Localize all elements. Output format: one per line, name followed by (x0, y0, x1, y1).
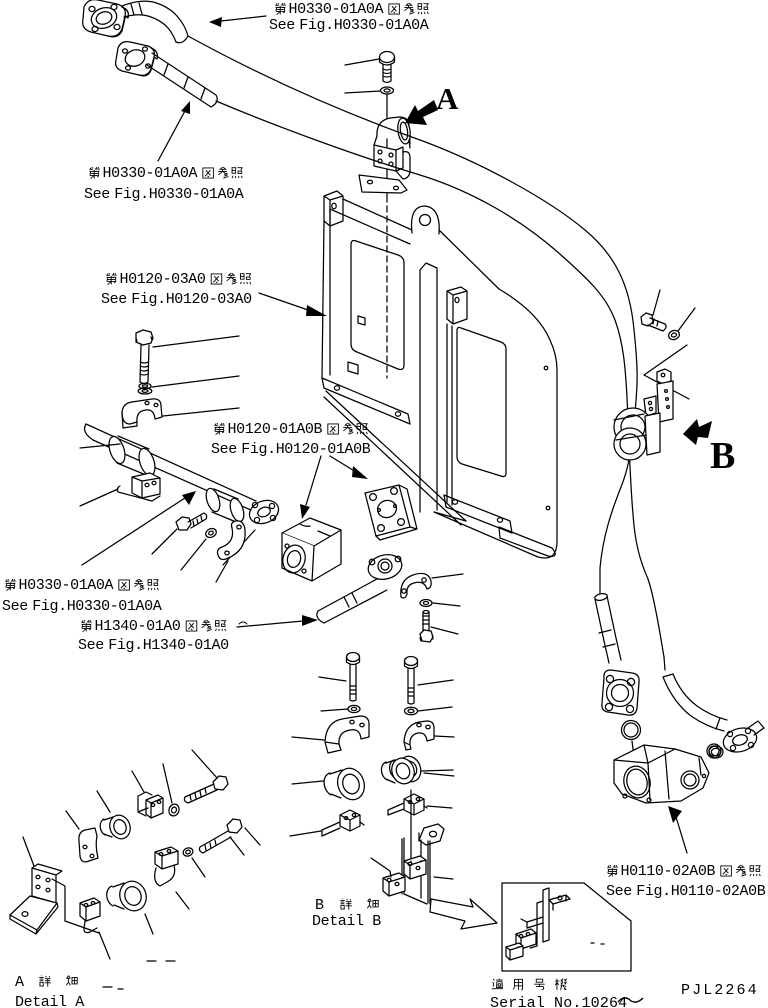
svg-text:Fig.H1340-01A0: Fig.H1340-01A0 (108, 637, 229, 654)
svg-text:Serial No.10264: Serial No.10264 (490, 995, 627, 1008)
svg-text:See: See (2, 598, 28, 615)
svg-text:Fig.H0330-01A0A: Fig.H0330-01A0A (114, 186, 243, 203)
svg-text:Fig.H0110-02A0B: Fig.H0110-02A0B (636, 883, 765, 900)
svg-text:Fig.H0120-03A0: Fig.H0120-03A0 (131, 291, 252, 308)
svg-text:H0110-02A0B: H0110-02A0B (621, 863, 716, 880)
svg-text:A: A (436, 81, 459, 116)
svg-text:H0330-01A0A: H0330-01A0A (103, 165, 198, 182)
svg-text:A: A (15, 974, 24, 991)
svg-text:H0330-01A0A: H0330-01A0A (289, 1, 384, 18)
svg-text:B: B (710, 435, 735, 477)
svg-text:See: See (101, 291, 127, 308)
svg-text:Fig.H0120-01A0B: Fig.H0120-01A0B (241, 441, 370, 458)
svg-text:H0120-01A0B: H0120-01A0B (228, 421, 323, 438)
svg-text:PJL2264: PJL2264 (681, 982, 759, 999)
svg-text:See: See (269, 17, 295, 34)
svg-text:Fig.H0330-01A0A: Fig.H0330-01A0A (299, 17, 428, 34)
svg-text:Detail A: Detail A (15, 994, 84, 1008)
svg-text:See: See (606, 883, 632, 900)
svg-text:See: See (84, 186, 110, 203)
svg-text:H0120-03A0: H0120-03A0 (120, 271, 206, 288)
svg-text:See: See (211, 441, 237, 458)
svg-text:B: B (315, 897, 324, 914)
svg-text:H0330-01A0A: H0330-01A0A (19, 577, 114, 594)
svg-text:H1340-01A0: H1340-01A0 (95, 618, 181, 635)
svg-text:Fig.H0330-01A0A: Fig.H0330-01A0A (32, 598, 161, 615)
svg-text:See: See (78, 637, 104, 654)
svg-text:Detail B: Detail B (312, 913, 381, 930)
